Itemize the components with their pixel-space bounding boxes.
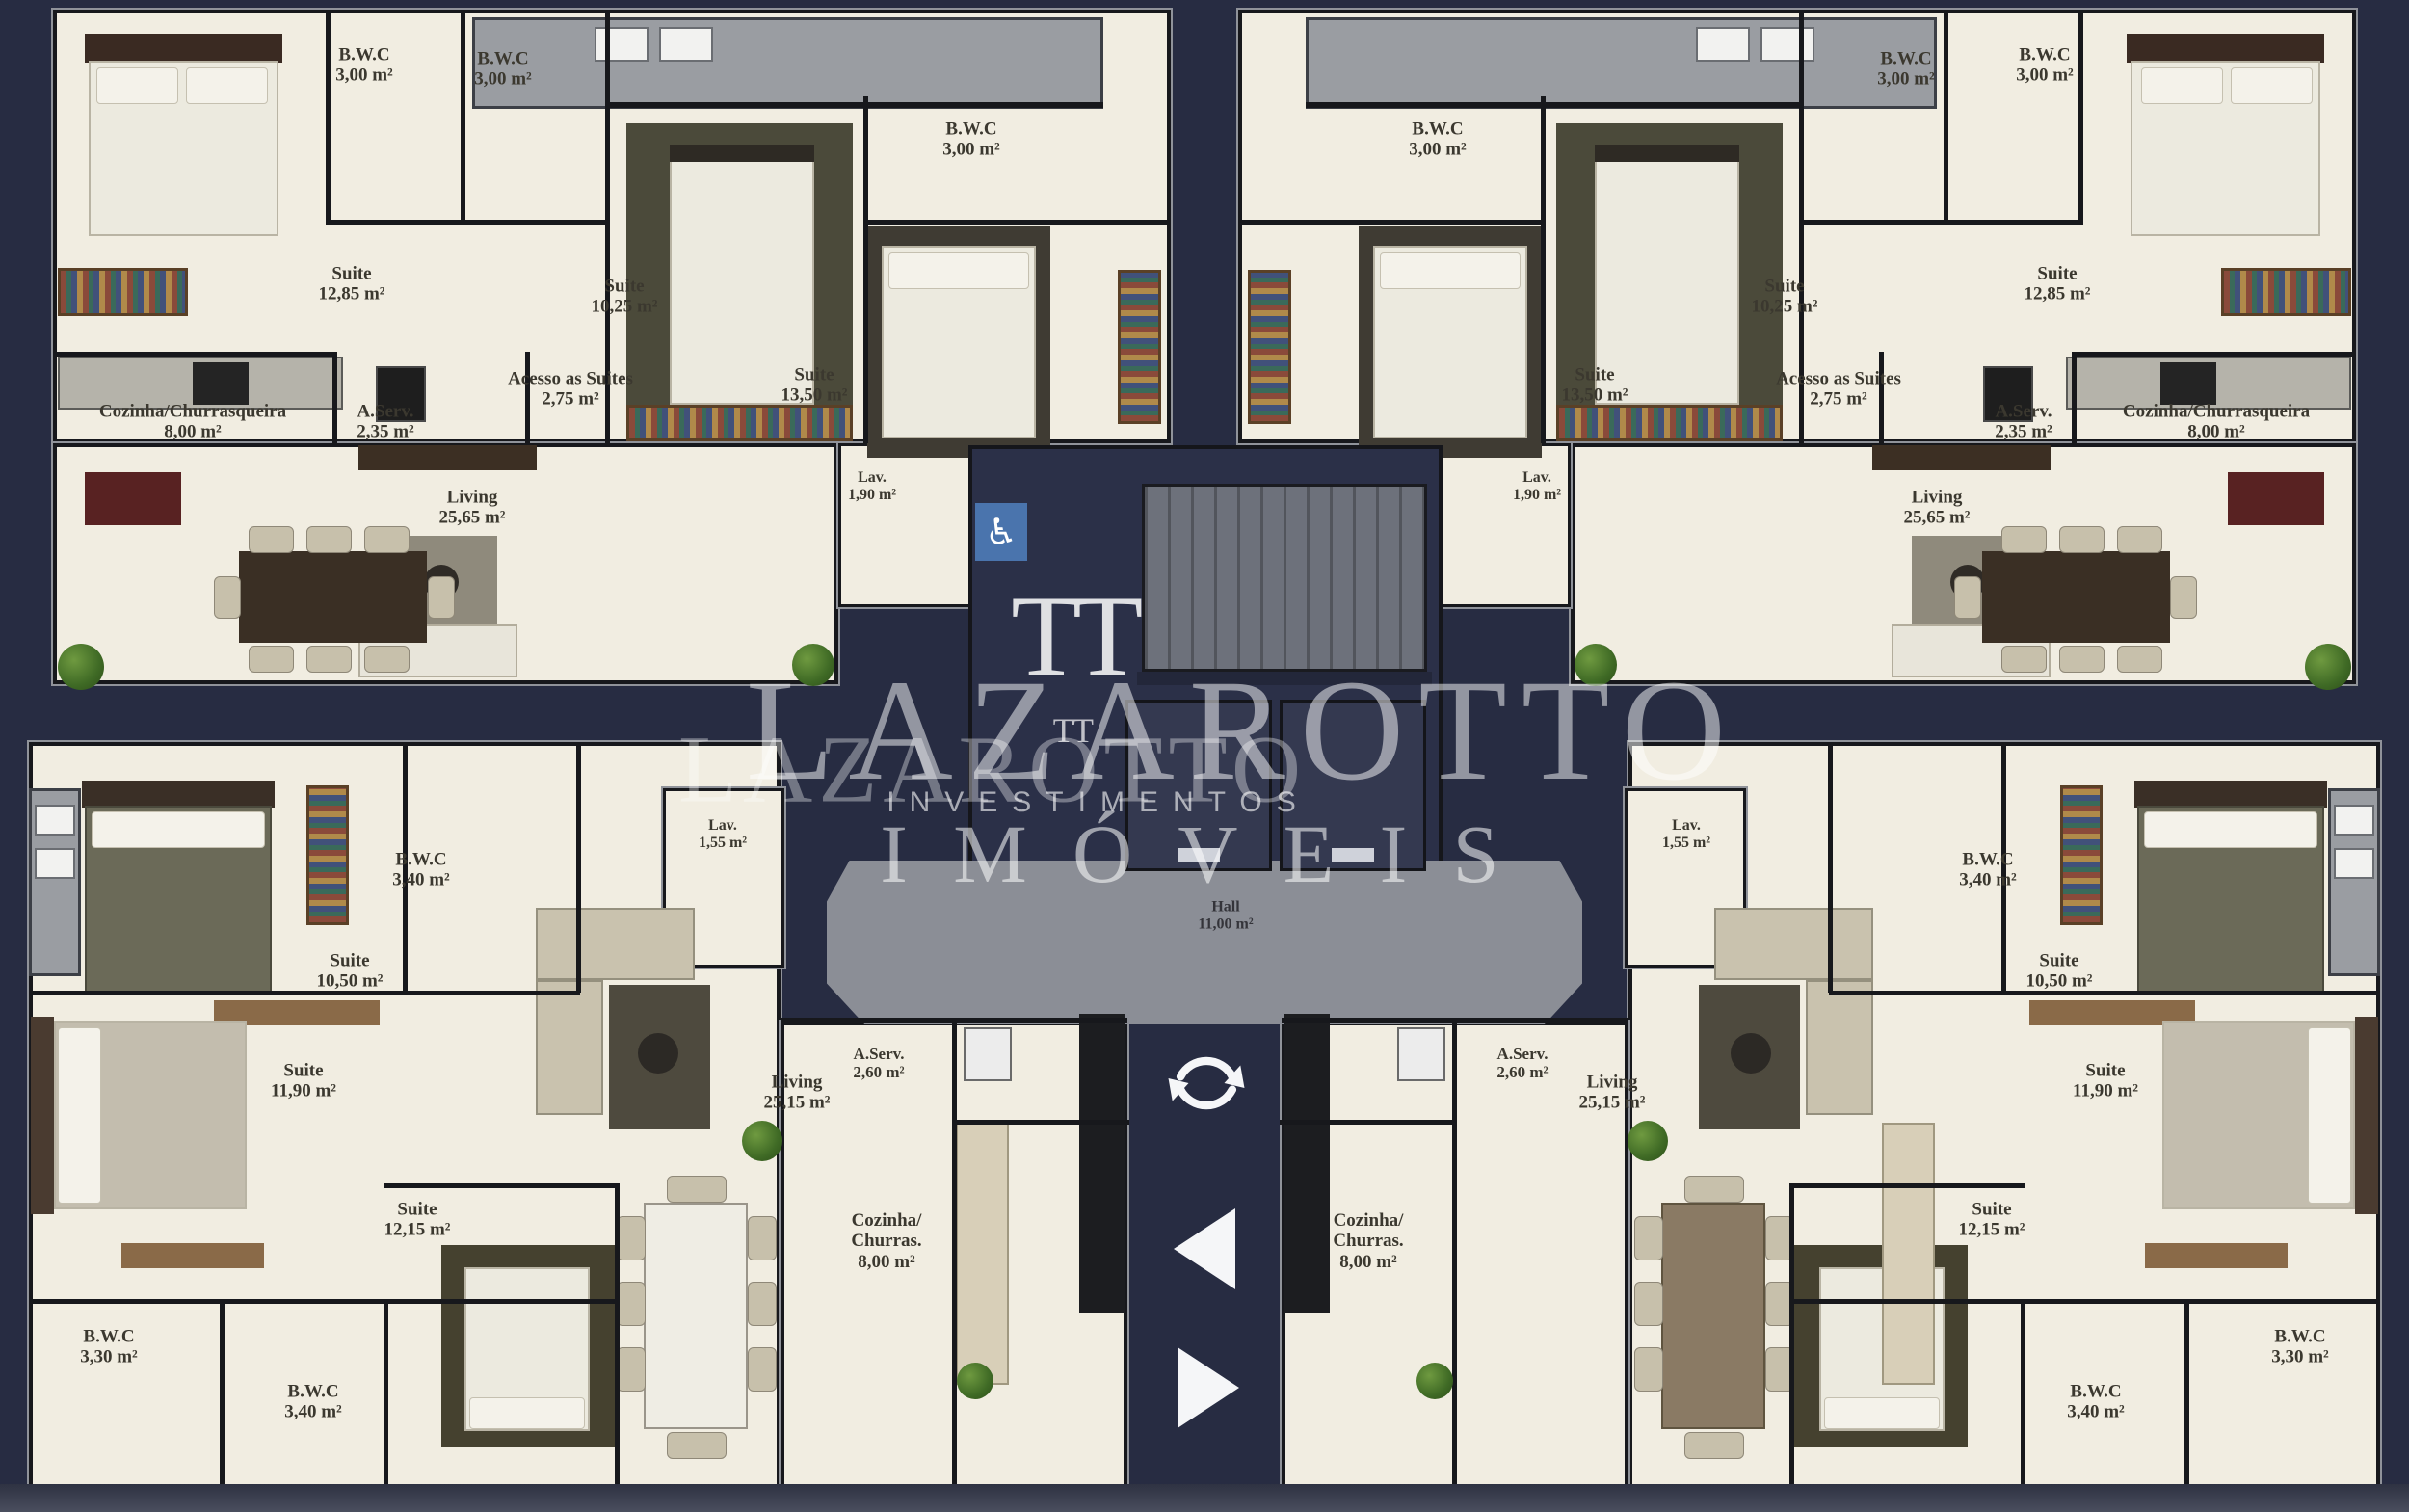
ac-unit <box>1760 27 1814 62</box>
wall <box>1829 991 2380 995</box>
room-label-aserv: A.Serv.2,35 m² <box>1995 402 2052 443</box>
bed-pillow <box>58 1027 101 1204</box>
dining-table <box>1982 551 2170 643</box>
balcony-strip <box>472 17 1103 109</box>
chair <box>364 646 410 673</box>
triangle-left-icon <box>1174 1208 1235 1289</box>
room-label-bwc: B.W.C3,00 m² <box>1409 119 1467 161</box>
room-label-bwc: B.W.C3,40 m² <box>284 1382 342 1423</box>
wall <box>332 352 337 443</box>
room-label-suite: Suite12,85 m² <box>318 264 384 305</box>
stove <box>193 362 249 405</box>
room-label-suite: Suite11,90 m² <box>2073 1061 2138 1102</box>
chair <box>306 646 352 673</box>
chair <box>667 1176 727 1203</box>
wall <box>863 96 868 443</box>
ac-unit <box>2334 848 2374 879</box>
wall <box>615 1183 620 1489</box>
elevator-door <box>1332 848 1374 862</box>
wall <box>867 220 1171 225</box>
ac-unit <box>595 27 649 62</box>
room-label-living: Living25,15 m² <box>763 1073 830 1114</box>
wall <box>2077 352 2356 357</box>
washer <box>964 1027 1012 1081</box>
wall <box>29 991 580 995</box>
wall <box>2021 1301 2025 1489</box>
kitchen-island <box>1882 1123 1935 1385</box>
ac-unit <box>35 848 75 879</box>
wall <box>1790 1299 2380 1304</box>
wall <box>29 1299 619 1304</box>
wall <box>2072 352 2077 443</box>
bed-headboard <box>670 145 814 162</box>
coffee-table <box>1731 1033 1771 1074</box>
chair <box>249 646 294 673</box>
chair <box>214 576 241 619</box>
room-label-bwc: B.W.C3,00 m² <box>335 45 393 87</box>
bed-pillow <box>888 252 1029 289</box>
wall <box>605 102 1103 108</box>
wall <box>1828 742 1833 993</box>
bed-pillow <box>2231 67 2313 104</box>
chair <box>1634 1216 1663 1260</box>
lav-room-top-right <box>1426 443 1571 607</box>
room-label-lav: Lav.1,90 m² <box>848 469 896 504</box>
wheelchair-icon: ♿ <box>975 503 1027 561</box>
wall <box>1944 10 1948 224</box>
bookshelf <box>2060 785 2103 925</box>
bookshelf <box>58 268 188 316</box>
wall <box>384 1183 620 1188</box>
sofa-chaise <box>536 980 603 1115</box>
kitchen-appliances <box>1079 1014 1125 1313</box>
room-label-bwc: B.W.C3,00 m² <box>474 49 532 91</box>
chair <box>748 1282 777 1326</box>
wall <box>2184 1301 2189 1489</box>
room-label-lav: Lav.1,90 m² <box>1513 469 1561 504</box>
room-label-lav: Lav.1,55 m² <box>699 817 747 852</box>
chair <box>249 526 294 553</box>
room-label-suite: Suite12,85 m² <box>2024 264 2090 305</box>
chair <box>667 1432 727 1459</box>
bookshelf <box>1556 405 1783 441</box>
wall <box>1799 220 2083 225</box>
bed-pillow <box>1380 252 1521 289</box>
plant <box>792 644 834 686</box>
room-label-living: Living25,65 m² <box>438 488 505 529</box>
room-label-bwc: B.W.C3,40 m² <box>392 850 450 891</box>
wall <box>220 1301 225 1489</box>
room-label-suite: Suite10,25 m² <box>1751 277 1817 318</box>
room-label-suite: Suite10,25 m² <box>591 277 657 318</box>
stairs <box>1142 484 1427 672</box>
wall <box>461 10 465 224</box>
bookshelf <box>2221 268 2351 316</box>
room-label-suite: Suite13,50 m² <box>781 365 847 407</box>
dining-table <box>644 1203 748 1429</box>
plant <box>742 1121 782 1161</box>
chair <box>2059 646 2105 673</box>
tv-console <box>1872 445 2051 470</box>
chair <box>617 1216 646 1260</box>
wall <box>384 1301 388 1489</box>
wall <box>1282 1018 1628 1023</box>
room-label-living: Living25,65 m² <box>1903 488 1970 529</box>
tv-console <box>121 1243 264 1268</box>
chair <box>2117 526 2162 553</box>
plant <box>1628 1121 1668 1161</box>
rug <box>2228 472 2324 525</box>
bed-headboard <box>31 1017 54 1214</box>
dining-table <box>1661 1203 1765 1429</box>
lav-room-top-left <box>838 443 983 607</box>
wall <box>2078 10 2083 224</box>
chair <box>2170 576 2197 619</box>
triangle-right-icon <box>1178 1347 1239 1428</box>
tv-console <box>2145 1243 2288 1268</box>
elevator <box>1280 700 1426 871</box>
floor-plan-canvas: Suite12,85 m² B.W.C3,00 m² B.W.C3,00 m² … <box>0 0 2409 1512</box>
room-label-bwc: B.W.C3,30 m² <box>80 1327 138 1368</box>
bottom-bar <box>0 1484 2409 1512</box>
chair <box>2001 646 2047 673</box>
dining-table <box>239 551 427 643</box>
ac-unit <box>2334 805 2374 836</box>
stove <box>2160 362 2216 405</box>
room-label-bwc: B.W.C3,40 m² <box>1959 850 2017 891</box>
chair <box>1684 1432 1744 1459</box>
plant <box>1575 644 1617 686</box>
chair <box>1684 1176 1744 1203</box>
chair <box>1634 1347 1663 1392</box>
room-label-bwc: B.W.C3,40 m² <box>2067 1382 2125 1423</box>
wall <box>1280 1120 1457 1125</box>
room-label-suite: Suite12,15 m² <box>1958 1200 2025 1241</box>
wall <box>326 220 610 225</box>
wall <box>1789 1183 1794 1489</box>
chair <box>617 1347 646 1392</box>
previous-button[interactable] <box>1174 1208 1237 1289</box>
elevator-door <box>1178 848 1220 862</box>
room-label-cozinha: Cozinha/Churrasqueira8,00 m² <box>99 402 286 443</box>
rug <box>85 472 181 525</box>
wall <box>1541 96 1546 443</box>
bed-headboard <box>1595 145 1739 162</box>
bed-pillow <box>96 67 178 104</box>
washer <box>1397 1027 1445 1081</box>
room-label-bwc: B.W.C3,30 m² <box>2271 1327 2329 1368</box>
bed-pillow <box>186 67 268 104</box>
wall <box>53 352 332 357</box>
wall <box>1238 220 1542 225</box>
bed-headboard <box>85 34 282 63</box>
bed-pillow <box>2141 67 2223 104</box>
room-label-bwc: B.W.C3,00 m² <box>2016 45 2074 87</box>
room-label-suite: Suite10,50 m² <box>2025 951 2092 993</box>
wall <box>326 10 331 224</box>
plant <box>58 644 104 690</box>
chair <box>428 576 455 619</box>
sofa <box>1714 908 1873 980</box>
bookshelf <box>626 405 853 441</box>
hall-floor <box>827 861 1582 1024</box>
chair <box>1634 1282 1663 1326</box>
wall <box>1306 102 1804 108</box>
chair <box>1954 576 1981 619</box>
chair <box>364 526 410 553</box>
chair <box>306 526 352 553</box>
ac-unit <box>659 27 713 62</box>
wall <box>576 742 581 993</box>
stair-landing <box>1137 672 1432 685</box>
room-label-bwc: B.W.C3,00 m² <box>942 119 1000 161</box>
room-label-bwc: B.W.C3,00 m² <box>1877 49 1935 91</box>
room-label-suite: Suite10,50 m² <box>316 951 383 993</box>
chair <box>2059 526 2105 553</box>
tv-console <box>358 445 537 470</box>
room-label-cozinha: Cozinha/ Churras.8,00 m² <box>1310 1210 1426 1272</box>
next-button[interactable] <box>1178 1347 1241 1428</box>
room-label-suite: Suite11,90 m² <box>271 1061 336 1102</box>
elevator <box>1125 700 1272 871</box>
ac-unit <box>1696 27 1750 62</box>
bookshelf <box>1118 270 1161 424</box>
room-label-aserv: A.Serv.2,35 m² <box>357 402 414 443</box>
chair <box>617 1282 646 1326</box>
plant <box>1416 1363 1453 1399</box>
wall <box>781 1018 1127 1023</box>
ac-unit <box>35 805 75 836</box>
bed-headboard <box>2127 34 2324 63</box>
room-label-suite: Suite12,15 m² <box>384 1200 450 1241</box>
chair <box>2117 646 2162 673</box>
balcony-strip <box>1306 17 1937 109</box>
rotate-icon <box>1166 1043 1247 1124</box>
plant <box>957 1363 993 1399</box>
wall <box>952 1120 1129 1125</box>
kitchen-island <box>956 1123 1009 1385</box>
bed-headboard <box>82 781 275 808</box>
chair <box>748 1216 777 1260</box>
chair <box>748 1347 777 1392</box>
hall-label: Hall11,00 m² <box>1198 898 1253 932</box>
wall <box>952 1021 957 1489</box>
coffee-table <box>638 1033 678 1074</box>
sofa-chaise <box>1806 980 1873 1115</box>
bookshelf <box>1248 270 1291 424</box>
room-label-acesso: Acesso as Suites2,75 m² <box>1776 369 1901 411</box>
bed-headboard <box>2134 781 2327 808</box>
wall <box>1789 1183 2025 1188</box>
bed-headboard <box>2355 1017 2378 1214</box>
bed-pillow <box>469 1397 585 1429</box>
chair <box>2001 526 2047 553</box>
sofa <box>536 908 695 980</box>
room-label-cozinha: Cozinha/Churrasqueira8,00 m² <box>2123 402 2310 443</box>
plant <box>2305 644 2351 690</box>
room-label-cozinha: Cozinha/ Churras.8,00 m² <box>829 1210 944 1272</box>
room-label-suite: Suite13,50 m² <box>1561 365 1628 407</box>
room-label-aserv: A.Serv.2,60 m² <box>853 1045 904 1081</box>
room-label-acesso: Acesso as Suites2,75 m² <box>508 369 633 411</box>
wall <box>1452 1021 1457 1489</box>
room-label-aserv: A.Serv.2,60 m² <box>1496 1045 1548 1081</box>
bed-pillow <box>92 811 265 848</box>
room-label-living: Living25,15 m² <box>1578 1073 1645 1114</box>
bed-pillow <box>2308 1027 2351 1204</box>
bed-pillow <box>1824 1397 1940 1429</box>
rotate-button[interactable] <box>1166 1043 1247 1124</box>
bed-pillow <box>2144 811 2317 848</box>
room-label-lav: Lav.1,55 m² <box>1662 817 1710 852</box>
bookshelf <box>306 785 349 925</box>
